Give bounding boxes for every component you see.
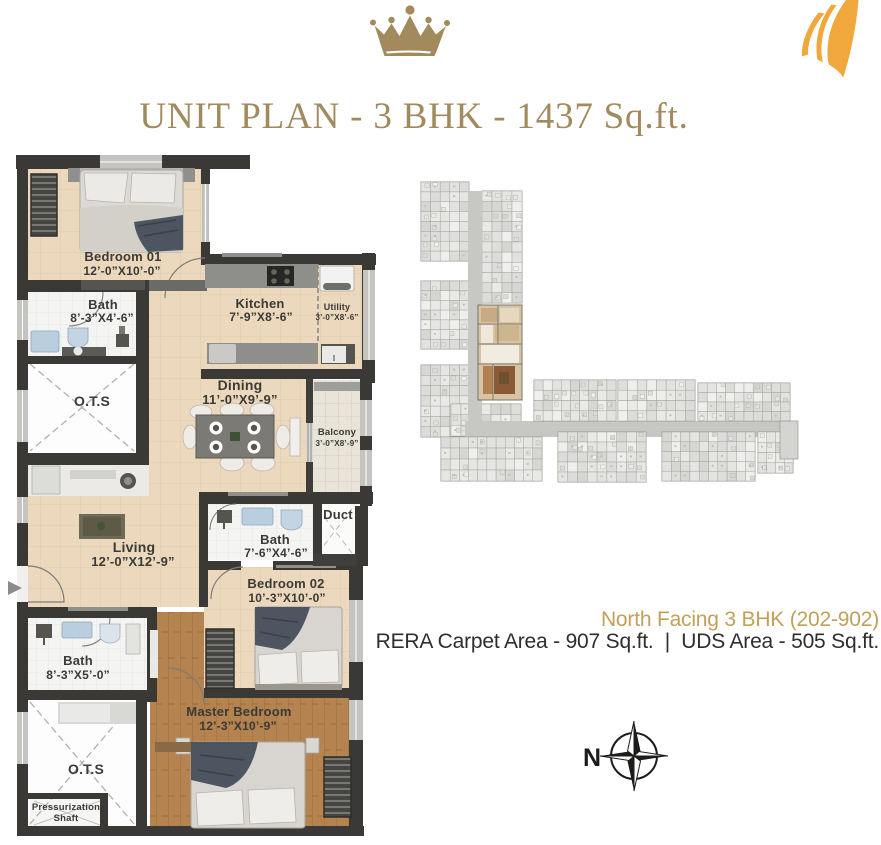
svg-text:O.T.S: O.T.S [74,393,110,409]
svg-text:7’-9”X8’-6”: 7’-9”X8’-6” [229,310,293,324]
svg-text:Utility: Utility [324,302,350,312]
svg-text:Bath: Bath [260,532,290,547]
svg-text:Bath: Bath [88,297,118,312]
svg-text:12’-0”X10’-0”: 12’-0”X10’-0” [83,264,160,278]
svg-text:N: N [583,744,601,772]
svg-text:North Facing 3 BHK (202-902): North Facing 3 BHK (202-902) [601,608,879,631]
svg-text:10’-3”X10’-0”: 10’-3”X10’-0” [248,591,325,605]
svg-text:Living: Living [113,539,155,555]
svg-text:7’-6”X4’-6”: 7’-6”X4’-6” [244,546,308,560]
svg-text:11’-0”X9’-9”: 11’-0”X9’-9” [202,392,277,407]
svg-text:UNIT PLAN - 3 BHK - 1437 Sq.ft: UNIT PLAN - 3 BHK - 1437 Sq.ft. [139,96,688,137]
svg-text:12’-0”X12’-9”: 12’-0”X12’-9” [91,554,175,569]
svg-text:RERA Carpet Area - 907 Sq.ft.: RERA Carpet Area - 907 Sq.ft. | UDS Area… [376,630,879,653]
svg-text:12’-3”X10’-9”: 12’-3”X10’-9” [199,719,276,733]
svg-text:Dining: Dining [218,377,263,393]
svg-text:8’-3”X4’-6”: 8’-3”X4’-6” [70,311,134,325]
svg-text:Shaft: Shaft [54,813,79,824]
svg-text:Bedroom 02: Bedroom 02 [247,576,324,591]
svg-text:Kitchen: Kitchen [235,296,284,311]
svg-text:Bath: Bath [63,653,93,668]
svg-text:O.T.S: O.T.S [68,761,104,777]
svg-text:3’-0”X8’-6”: 3’-0”X8’-6” [315,313,358,322]
svg-text:Bedroom 01: Bedroom 01 [84,249,161,264]
svg-text:8’-3”X5’-0”: 8’-3”X5’-0” [46,668,110,682]
svg-text:Balcony: Balcony [318,427,357,438]
svg-text:Master Bedroom: Master Bedroom [186,704,291,719]
svg-text:3’-0”X8’-9”: 3’-0”X8’-9” [315,439,358,448]
svg-text:Duct: Duct [323,507,353,522]
svg-text:Pressurization: Pressurization [32,802,100,813]
